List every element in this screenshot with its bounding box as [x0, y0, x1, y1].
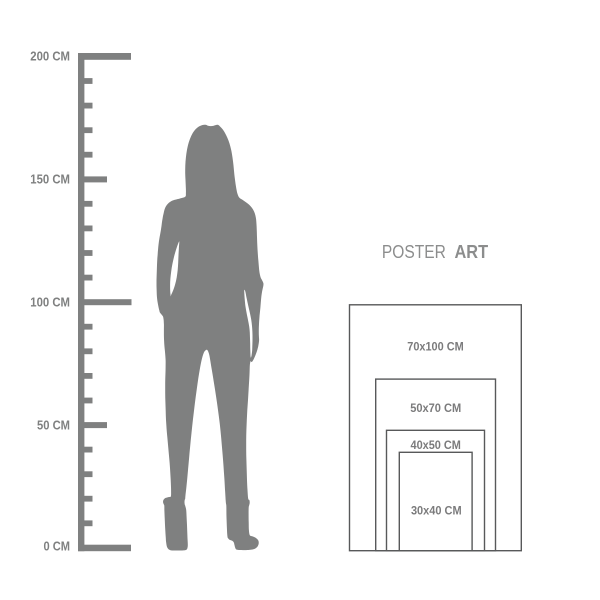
svg-text:50 CM: 50 CM [37, 418, 70, 432]
svg-text:100 CM: 100 CM [30, 295, 70, 309]
svg-text:70x100 CM: 70x100 CM [407, 341, 463, 354]
svg-text:30x40 CM: 30x40 CM [411, 504, 462, 517]
svg-text:POSTER: POSTER [382, 242, 446, 262]
svg-text:ART: ART [455, 242, 489, 262]
svg-text:40x50 CM: 40x50 CM [411, 439, 461, 452]
svg-text:50x70 CM: 50x70 CM [410, 402, 461, 415]
svg-text:0 CM: 0 CM [44, 540, 71, 554]
svg-text:200 CM: 200 CM [30, 50, 70, 64]
svg-text:150 CM: 150 CM [30, 173, 70, 187]
